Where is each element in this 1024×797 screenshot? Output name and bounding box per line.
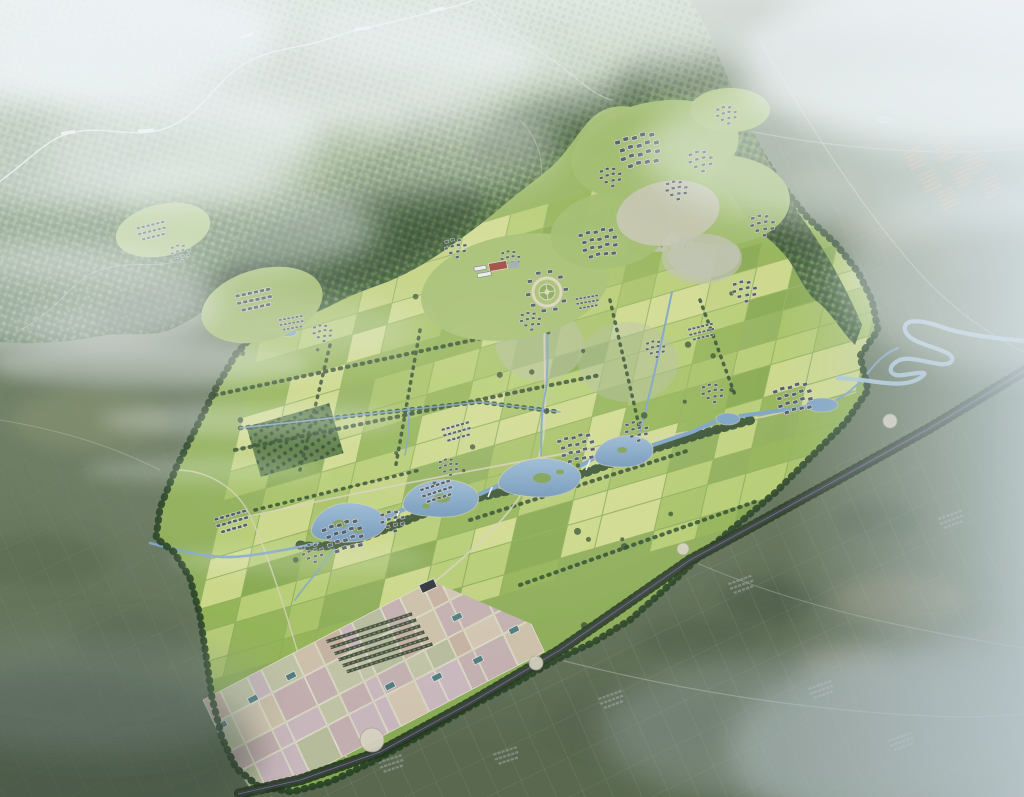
aerial-masterplan-rendering: Aerial bird's-eye masterplan rendering: … <box>0 0 1024 797</box>
scene-canvas: Aerial bird's-eye masterplan rendering: … <box>0 0 1024 797</box>
